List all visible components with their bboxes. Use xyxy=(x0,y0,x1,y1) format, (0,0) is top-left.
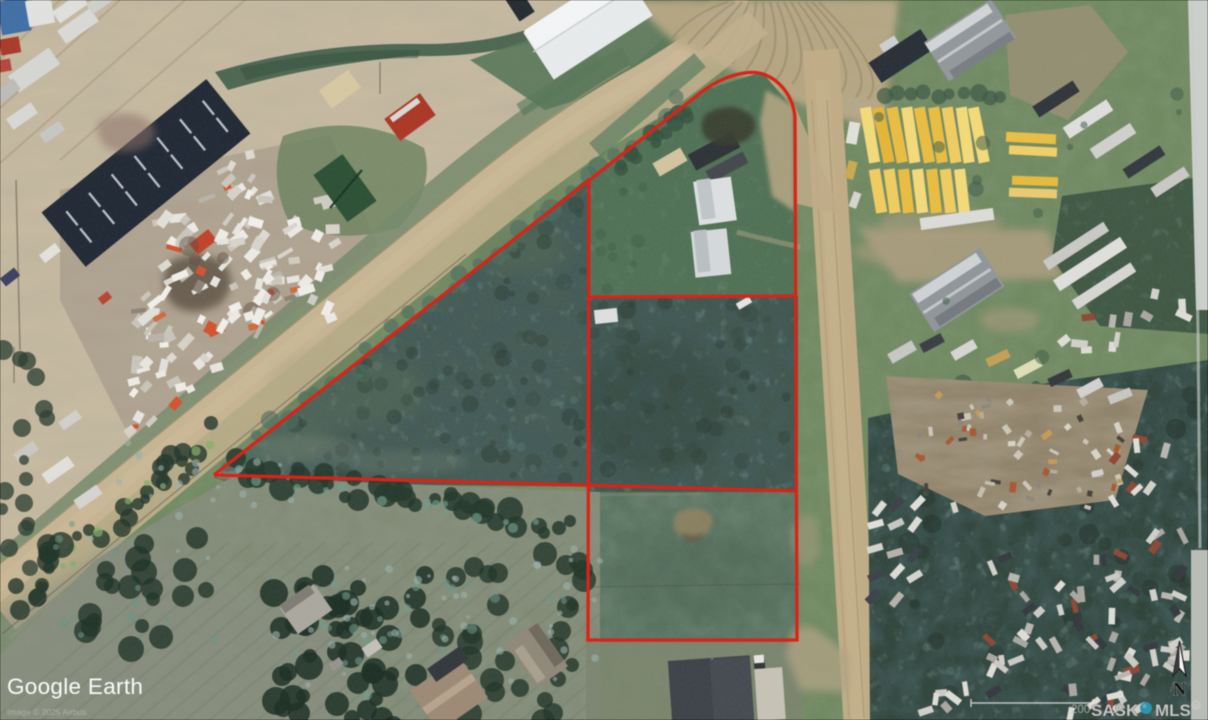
svg-text:MLS: MLS xyxy=(1155,701,1191,720)
svg-text:Google Earth: Google Earth xyxy=(7,674,143,699)
svg-text:200: 200 xyxy=(1071,704,1090,716)
svg-text:Image © 2025 Airbus: Image © 2025 Airbus xyxy=(7,707,87,717)
svg-text:N: N xyxy=(1173,679,1186,699)
svg-text:SASK: SASK xyxy=(1091,701,1139,720)
svg-text:R: R xyxy=(1194,703,1199,710)
